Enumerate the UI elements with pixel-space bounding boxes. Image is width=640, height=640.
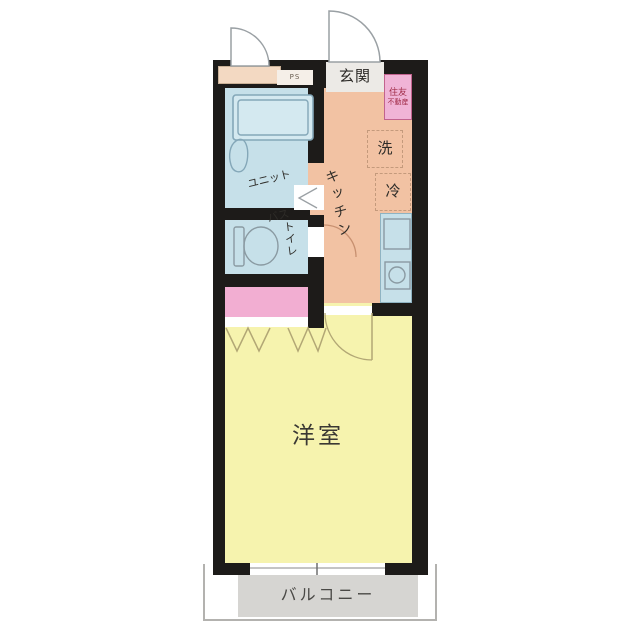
wall-right <box>412 60 428 575</box>
fridge-label: 冷 <box>385 183 400 200</box>
service-door-sill <box>218 66 281 84</box>
closet-door-track <box>225 317 310 327</box>
entrance-door-arc <box>329 11 380 62</box>
wall-kitchen-room <box>372 303 412 316</box>
agency-stamp-line2: 不動産 <box>388 98 409 106</box>
wall-corridor-upper <box>308 88 324 163</box>
unit-bath-label-line2: バス <box>245 203 312 231</box>
unit-bath-label-line1: ユニット <box>236 166 303 194</box>
pipe-space-label: PS <box>290 73 301 81</box>
wall-left <box>213 60 225 575</box>
washer-label: 洗 <box>377 140 392 157</box>
balcony-label: バルコニー <box>238 583 418 607</box>
entrance-label: 玄関 <box>339 68 371 85</box>
floor-plan: PS 玄関 住友 不動産 洗 冷 <box>0 0 640 640</box>
entrance-area: 玄関 <box>326 62 384 92</box>
closet-box <box>225 287 310 317</box>
bedroom-door-sill <box>324 306 372 315</box>
kitchen-counter <box>380 213 412 303</box>
western-room-label: 洋室 <box>270 422 366 450</box>
washer-space: 洗 <box>367 130 403 168</box>
agency-stamp-line1: 住友 <box>389 88 407 98</box>
agency-stamp: 住友 不動産 <box>384 74 412 120</box>
wall-corridor-lower <box>308 257 324 328</box>
fridge-space: 冷 <box>375 173 411 211</box>
window-opening <box>250 563 385 575</box>
wall-toilet-closet <box>225 274 310 287</box>
pipe-space-box: PS <box>277 70 313 85</box>
